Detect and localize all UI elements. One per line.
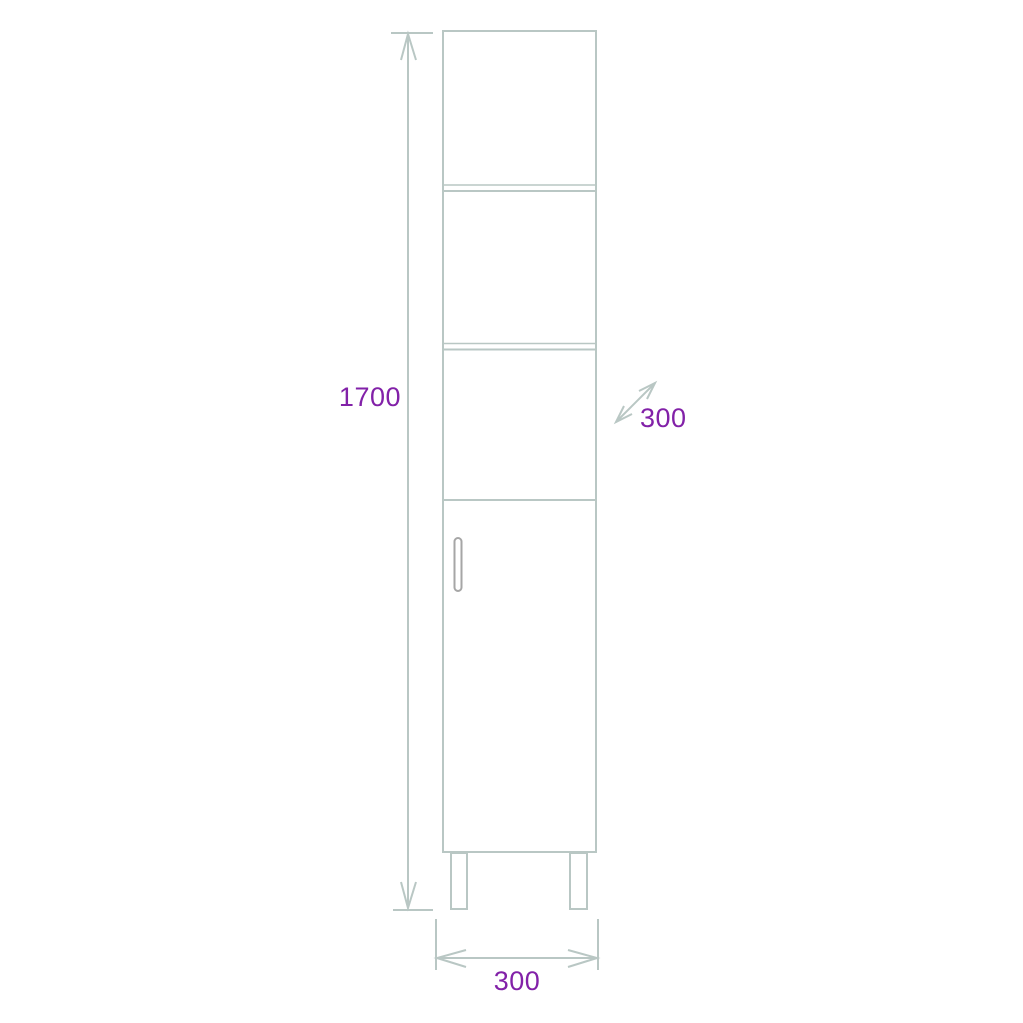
height-dimension-label: 1700 (339, 382, 401, 412)
door-handle (455, 538, 462, 591)
cabinet-technical-drawing: 1700 300 300 (0, 0, 1023, 1023)
height-dimension: 1700 (339, 33, 433, 910)
depth-dimension-label: 300 (640, 403, 687, 433)
width-dimension-label: 300 (494, 966, 541, 996)
leg-left (451, 853, 467, 909)
drawing-canvas: 1700 300 300 (0, 0, 1023, 1023)
cabinet-body (443, 31, 596, 909)
depth-dimension: 300 (616, 383, 687, 433)
width-dimension: 300 (436, 919, 598, 996)
cabinet-outline (443, 31, 596, 852)
leg-right (570, 853, 587, 909)
